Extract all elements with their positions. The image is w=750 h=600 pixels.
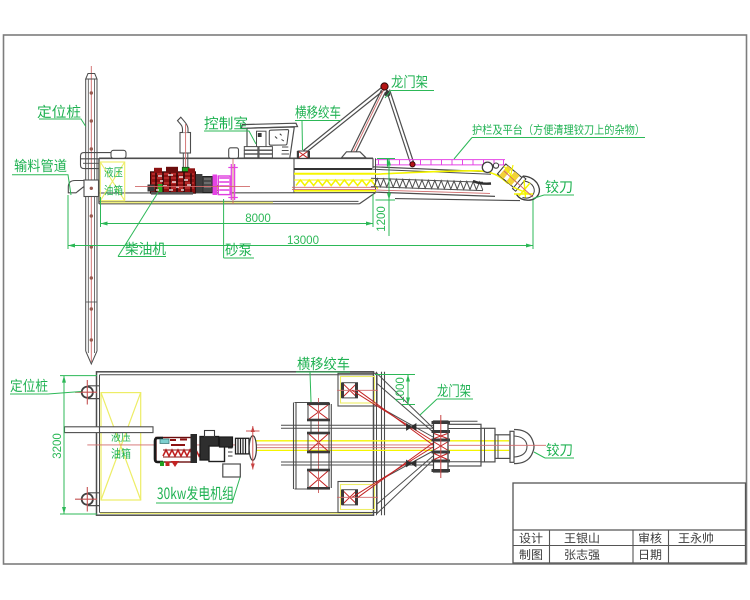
svg-text:8000: 8000: [245, 213, 271, 225]
svg-text:13000: 13000: [287, 235, 319, 247]
svg-text:3200: 3200: [52, 433, 64, 459]
svg-text:1000: 1000: [395, 377, 407, 403]
svg-text:1200: 1200: [376, 206, 388, 232]
